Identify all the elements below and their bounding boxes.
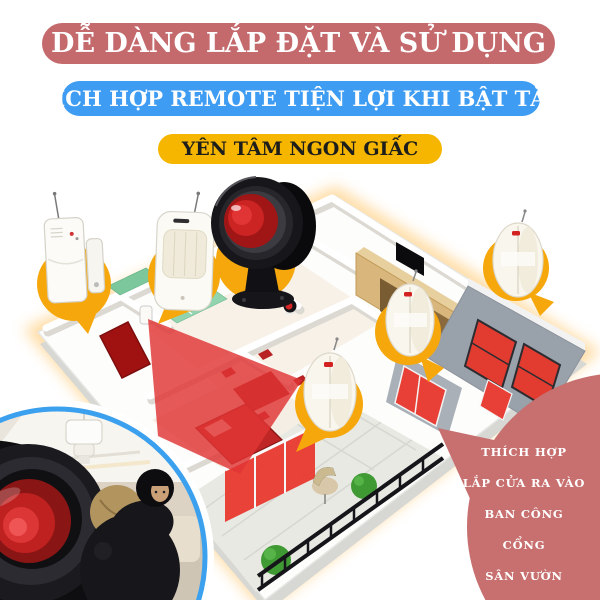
door-window-sensor-icon — [43, 190, 106, 304]
bubble-line-4: CỔNG — [445, 530, 600, 561]
pir-sensor-callout — [148, 190, 220, 324]
plant-highlight-2 — [354, 476, 364, 486]
bubble-line-1: THÍCH HỢP — [445, 437, 600, 468]
plant-highlight — [264, 548, 276, 560]
bubble-line-3: BAN CÔNG — [445, 499, 600, 530]
curtain-sensor-icon-3 — [493, 209, 543, 297]
suitability-bubble-text: THÍCH HỢP LẮP CỬA RA VÀO BAN CÔNG CỔNG S… — [445, 437, 600, 592]
pir-motion-sensor-icon — [154, 190, 215, 311]
bubble-line-5: SÂN VƯỜN — [445, 561, 600, 592]
promo-poster: DỄ DÀNG LẮP ĐẶT VÀ SỬ DỤNG TÍCH HỢP REMO… — [0, 0, 600, 600]
bubble-line-2: LẮP CỬA RA VÀO — [445, 468, 600, 499]
